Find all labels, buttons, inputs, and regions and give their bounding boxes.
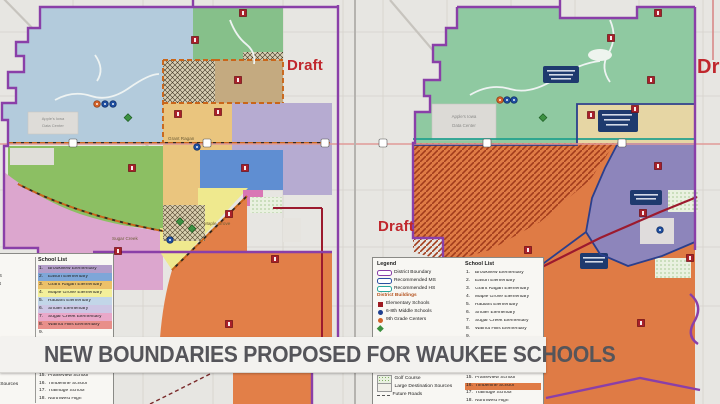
school-list-header: School List xyxy=(465,261,541,269)
school-row: 1.Brookview Elementary xyxy=(465,269,541,277)
school-name: Sugar Creek Elementary xyxy=(475,319,540,324)
legend-item-label: District Boundary xyxy=(394,271,431,276)
data-center-label-1: Apple's Iowa xyxy=(42,116,65,121)
school-row: 3.Grant Ragan Elementary xyxy=(38,281,112,289)
recommended-hs-swatch xyxy=(377,286,392,292)
school-row: 15.Prairieview School xyxy=(38,373,112,381)
school-list-lower-column: 15.Prairieview School 16.Timberline Scho… xyxy=(465,375,541,404)
golf-course-patch xyxy=(668,190,698,212)
district-boundary-swatch xyxy=(377,270,392,276)
legend-item-label: Recommended HS xyxy=(0,283,1,288)
school-num: 6. xyxy=(39,307,48,312)
white-patch xyxy=(283,218,301,242)
data-center-label-1: Apple's Iowa xyxy=(452,114,477,119)
news-banner: NEW BOUNDARIES PROPOSED FOR WAUKEE SCHOO… xyxy=(0,337,546,373)
legend-item-label: Elementary Schools xyxy=(386,302,430,307)
legend-header: Legend xyxy=(377,261,461,269)
school-row: 3.Grant Ragan Elementary xyxy=(465,285,541,293)
school-row: 9. xyxy=(38,329,112,337)
legend-item-district-boundary: District Boundary xyxy=(377,269,461,277)
school-name: Eason Elementary xyxy=(475,279,540,284)
school-num: 9. xyxy=(39,331,48,336)
school-num: 17. xyxy=(39,389,48,394)
school-num: 3. xyxy=(466,287,475,292)
label-sugar-creek: Sugar Creek xyxy=(112,236,138,241)
legend-item-future-roads: Future Roads xyxy=(0,389,31,397)
legend-box-left: Legend District Boundary Recommended MS … xyxy=(0,253,114,404)
school-row: 7.Sugar Creek Elementary xyxy=(465,317,541,325)
legend-symbols-column: Legend District Boundary Recommended MS … xyxy=(377,261,461,332)
school-row: 16.Timberline School xyxy=(38,381,112,389)
legend-box-right: Legend District Boundary Recommended MS … xyxy=(372,257,544,404)
destination-swatch xyxy=(377,383,392,392)
school-name: Maple Grove Elementary xyxy=(475,295,540,300)
golf-course-patch xyxy=(655,258,691,278)
school-name: Trailridge School xyxy=(48,389,111,394)
legend-item-9th-grade: 9th Grade Centers xyxy=(0,312,31,320)
school-row: 2.Eason Elementary xyxy=(465,277,541,285)
data-center-block: Apple's Iowa Data Center xyxy=(432,104,496,140)
legend-item-recommended-hs: Recommended HS xyxy=(377,285,461,293)
legend-item-district-boundary: District Boundary xyxy=(0,265,31,273)
school-num: 17. xyxy=(466,391,475,396)
legend-areas-column: Golf Course Large Destination Sources Fu… xyxy=(377,375,461,399)
legend-item-elementary: Elementary Schools xyxy=(377,300,461,308)
legend-item-golf-course: Golf Course xyxy=(0,373,31,381)
legend-item-elementary: Elementary Schools xyxy=(0,296,31,304)
legend-item-destinations: Large Destination Sources xyxy=(0,381,31,389)
map-label-box xyxy=(630,190,662,205)
school-num: 8. xyxy=(39,323,48,328)
school-row: 8.Walnut Hills Elementary xyxy=(38,321,112,329)
legend-areas-column: Golf Course Large Destination Sources Fu… xyxy=(0,373,31,397)
school-row: 4.Maple Grove Elementary xyxy=(465,293,541,301)
school-name: Brookview Elementary xyxy=(48,267,111,272)
zone-orange-bottom xyxy=(233,372,312,404)
diamond-swatch xyxy=(377,325,383,331)
school-row: 8.Walnut Hills Elementary xyxy=(465,325,541,333)
school-num: 1. xyxy=(466,271,475,276)
school-name: Grant Ragan Elementary xyxy=(475,287,540,292)
school-num: 8. xyxy=(466,327,475,332)
school-num: 1. xyxy=(39,267,48,272)
school-list-header: School List xyxy=(38,257,112,265)
school-row: 6.Shuler Elementary xyxy=(38,305,112,313)
legend-item-label: Future Roads xyxy=(393,393,423,398)
school-row: 5.Radiant Elementary xyxy=(465,301,541,309)
elementary-swatch xyxy=(378,302,383,307)
school-list-lower-column: 15.Prairieview School 16.Timberline Scho… xyxy=(35,373,112,403)
legend-item-destinations: Large Destination Sources xyxy=(377,383,461,391)
legend-item-label: Golf Course xyxy=(395,377,421,382)
school-num: 18. xyxy=(39,397,48,402)
news-graphic: Apple's Iowa Data Center Grant Ragan Sug… xyxy=(0,0,720,404)
green-notch xyxy=(10,148,54,165)
school-row: 18.Northwest High xyxy=(465,398,541,404)
school-row: 18.Northwest High xyxy=(38,396,112,404)
draft-watermark-right-edge: Draft xyxy=(697,56,720,79)
school-list-column: School List 1.Brookview Elementary 2.Eas… xyxy=(465,261,541,341)
school-num: 16. xyxy=(39,382,48,387)
recommended-ms-swatch xyxy=(377,278,392,284)
school-row: 2.Eason Elementary xyxy=(38,273,112,281)
school-row: 17.Trailridge School xyxy=(465,390,541,398)
school-num: 6. xyxy=(466,311,475,316)
school-name: Northwest High xyxy=(48,397,111,402)
legend-item-future-roads: Future Roads xyxy=(377,391,461,399)
legend-item-recommended-ms: Recommended MS xyxy=(377,277,461,285)
banner-headline: NEW BOUNDARIES PROPOSED FOR WAUKEE SCHOO… xyxy=(44,337,616,372)
school-name: Radiant Elementary xyxy=(48,299,111,304)
school-num: 7. xyxy=(39,315,48,320)
legend-item-label: Recommended MS xyxy=(0,275,2,280)
school-row: 5.Radiant Elementary xyxy=(38,297,112,305)
school-name: Maple Grove Elementary xyxy=(48,291,111,296)
draft-watermark-right: Draft xyxy=(378,218,414,235)
school-name: Walnut Hills Elementary xyxy=(475,327,540,332)
school-name: Timberline School xyxy=(475,384,540,389)
legend-symbols-column: Legend District Boundary Recommended MS … xyxy=(0,257,31,328)
school-row: 1.Brookview Elementary xyxy=(38,265,112,273)
legend-item-diamond xyxy=(377,324,461,332)
school-num: 4. xyxy=(39,291,48,296)
school-row: 4.Maple Grove Elementary xyxy=(38,289,112,297)
school-num: 2. xyxy=(466,279,475,284)
legend-header: Legend xyxy=(0,257,31,265)
district-buildings-header: District Buildings xyxy=(0,289,31,296)
school-row-highlighted: 16.Timberline School xyxy=(465,383,541,391)
school-row: 17.Trailridge School xyxy=(38,388,112,396)
school-num: 16. xyxy=(466,384,475,389)
school-name: Shuler Elementary xyxy=(475,311,540,316)
data-center-block: Apple's Iowa Data Center xyxy=(28,112,78,134)
legend-item-9th-grade: 9th Grade Centers xyxy=(377,316,461,324)
zone-tan xyxy=(215,60,283,103)
school-num: 7. xyxy=(466,319,475,324)
draft-watermark-left: Draft xyxy=(287,57,323,74)
map-label-box xyxy=(543,66,579,83)
golf-course-patch xyxy=(250,197,282,213)
legend-item-label: 6-8th Middle Schools xyxy=(386,310,432,315)
data-center-label-2: Data Center xyxy=(452,123,476,128)
school-num: 15. xyxy=(466,376,475,381)
middle-school-swatch xyxy=(378,310,383,315)
label-grant-ragan: Grant Ragan xyxy=(168,136,195,141)
district-buildings-header: District Buildings xyxy=(377,293,461,300)
legend-item-label: Recommended MS xyxy=(394,279,436,284)
future-roads-swatch xyxy=(377,395,390,396)
school-name: Trailridge School xyxy=(475,391,540,396)
ninth-grade-swatch xyxy=(378,318,383,323)
school-name: Prairieview School xyxy=(475,376,540,381)
legend-item-label: Large Destination Sources xyxy=(0,383,18,388)
school-name: Grant Ragan Elementary xyxy=(48,283,111,288)
school-name: Northwest High xyxy=(475,399,540,404)
school-num: 5. xyxy=(39,299,48,304)
data-center-label-2: Data Center xyxy=(42,123,64,128)
school-name: Brookview Elementary xyxy=(475,271,540,276)
map-label-box xyxy=(598,110,638,132)
school-row: 7.Sugar Creek Elementary xyxy=(38,313,112,321)
school-row: 6.Shuler Elementary xyxy=(465,309,541,317)
school-num: 5. xyxy=(466,303,475,308)
school-num: 15. xyxy=(39,374,48,379)
zone-crosshatch-block xyxy=(163,60,215,103)
school-num: 3. xyxy=(39,283,48,288)
school-row: 15.Prairieview School xyxy=(465,375,541,383)
school-name: Shuler Elementary xyxy=(48,307,111,312)
legend-item-recommended-hs: Recommended HS xyxy=(0,281,31,289)
school-name: Sugar Creek Elementary xyxy=(48,315,111,320)
legend-item-recommended-ms: Recommended MS xyxy=(0,273,31,281)
school-num: 2. xyxy=(39,275,48,280)
school-name: Walnut Hills Elementary xyxy=(48,323,111,328)
legend-item-label: Large Destination Sources xyxy=(395,385,453,390)
school-num: 4. xyxy=(466,295,475,300)
legend-item-label: Recommended HS xyxy=(394,287,435,292)
school-name: Eason Elementary xyxy=(48,275,111,280)
crosshatch-cluster xyxy=(163,205,205,241)
school-name: Prairieview School xyxy=(48,374,111,379)
legend-item-diamond xyxy=(0,320,31,328)
legend-item-label: 9th Grade Centers xyxy=(386,318,426,323)
school-num: 18. xyxy=(466,399,475,404)
school-name: Radiant Elementary xyxy=(475,303,540,308)
legend-item-middle: 6-8th Middle Schools xyxy=(377,308,461,316)
school-name: Timberline School xyxy=(48,382,111,387)
legend-item-middle: 6-8th Middle Schools xyxy=(0,304,31,312)
school-list-column: School List 1.Brookview Elementary 2.Eas… xyxy=(35,257,112,337)
